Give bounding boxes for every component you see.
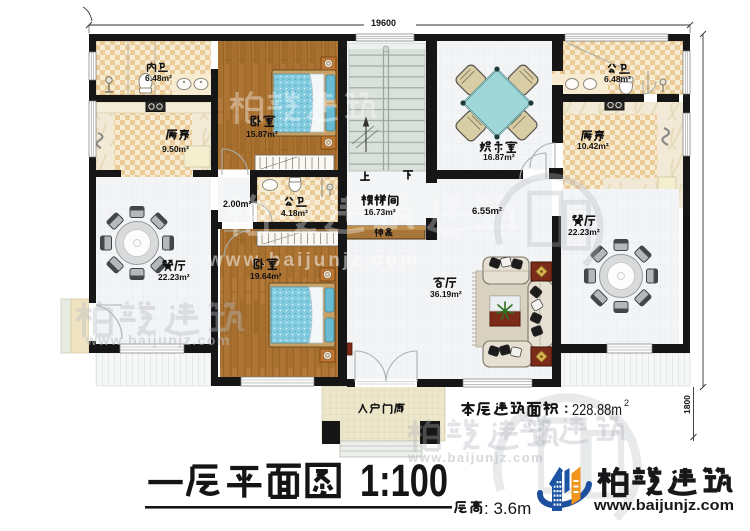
svg-text:1800: 1800 xyxy=(682,395,692,414)
svg-text:2: 2 xyxy=(624,398,629,408)
svg-text:6.48m²: 6.48m² xyxy=(604,74,631,84)
svg-text:11500: 11500 xyxy=(682,216,692,241)
svg-text:228.88m: 228.88m xyxy=(572,402,622,419)
svg-text:6.48m²: 6.48m² xyxy=(145,73,172,83)
svg-text:: 3.6m: : 3.6m xyxy=(484,499,531,518)
svg-text:19.64m²: 19.64m² xyxy=(250,271,282,281)
svg-text:16.73m²: 16.73m² xyxy=(364,207,396,217)
svg-text:6.55m²: 6.55m² xyxy=(472,206,502,217)
svg-text:www.baijunjz.com: www.baijunjz.com xyxy=(207,250,420,271)
svg-text:4.18m²: 4.18m² xyxy=(281,208,308,218)
svg-text:1:100: 1:100 xyxy=(360,455,448,506)
svg-text:19600: 19600 xyxy=(371,18,396,28)
svg-text:36.19m²: 36.19m² xyxy=(430,289,462,299)
svg-text:2.00m²: 2.00m² xyxy=(223,199,252,209)
svg-text:22.23m²: 22.23m² xyxy=(568,227,600,237)
svg-text:www.baijunjz.com: www.baijunjz.com xyxy=(593,498,734,514)
svg-text:www.baijunjz.com: www.baijunjz.com xyxy=(85,332,231,348)
svg-text:9.50m²: 9.50m² xyxy=(162,144,189,154)
svg-text:15.87m²: 15.87m² xyxy=(246,129,278,139)
svg-text:10.42m²: 10.42m² xyxy=(577,141,609,151)
svg-text:16.87m²: 16.87m² xyxy=(483,152,515,162)
svg-text:22.23m²: 22.23m² xyxy=(158,272,190,282)
